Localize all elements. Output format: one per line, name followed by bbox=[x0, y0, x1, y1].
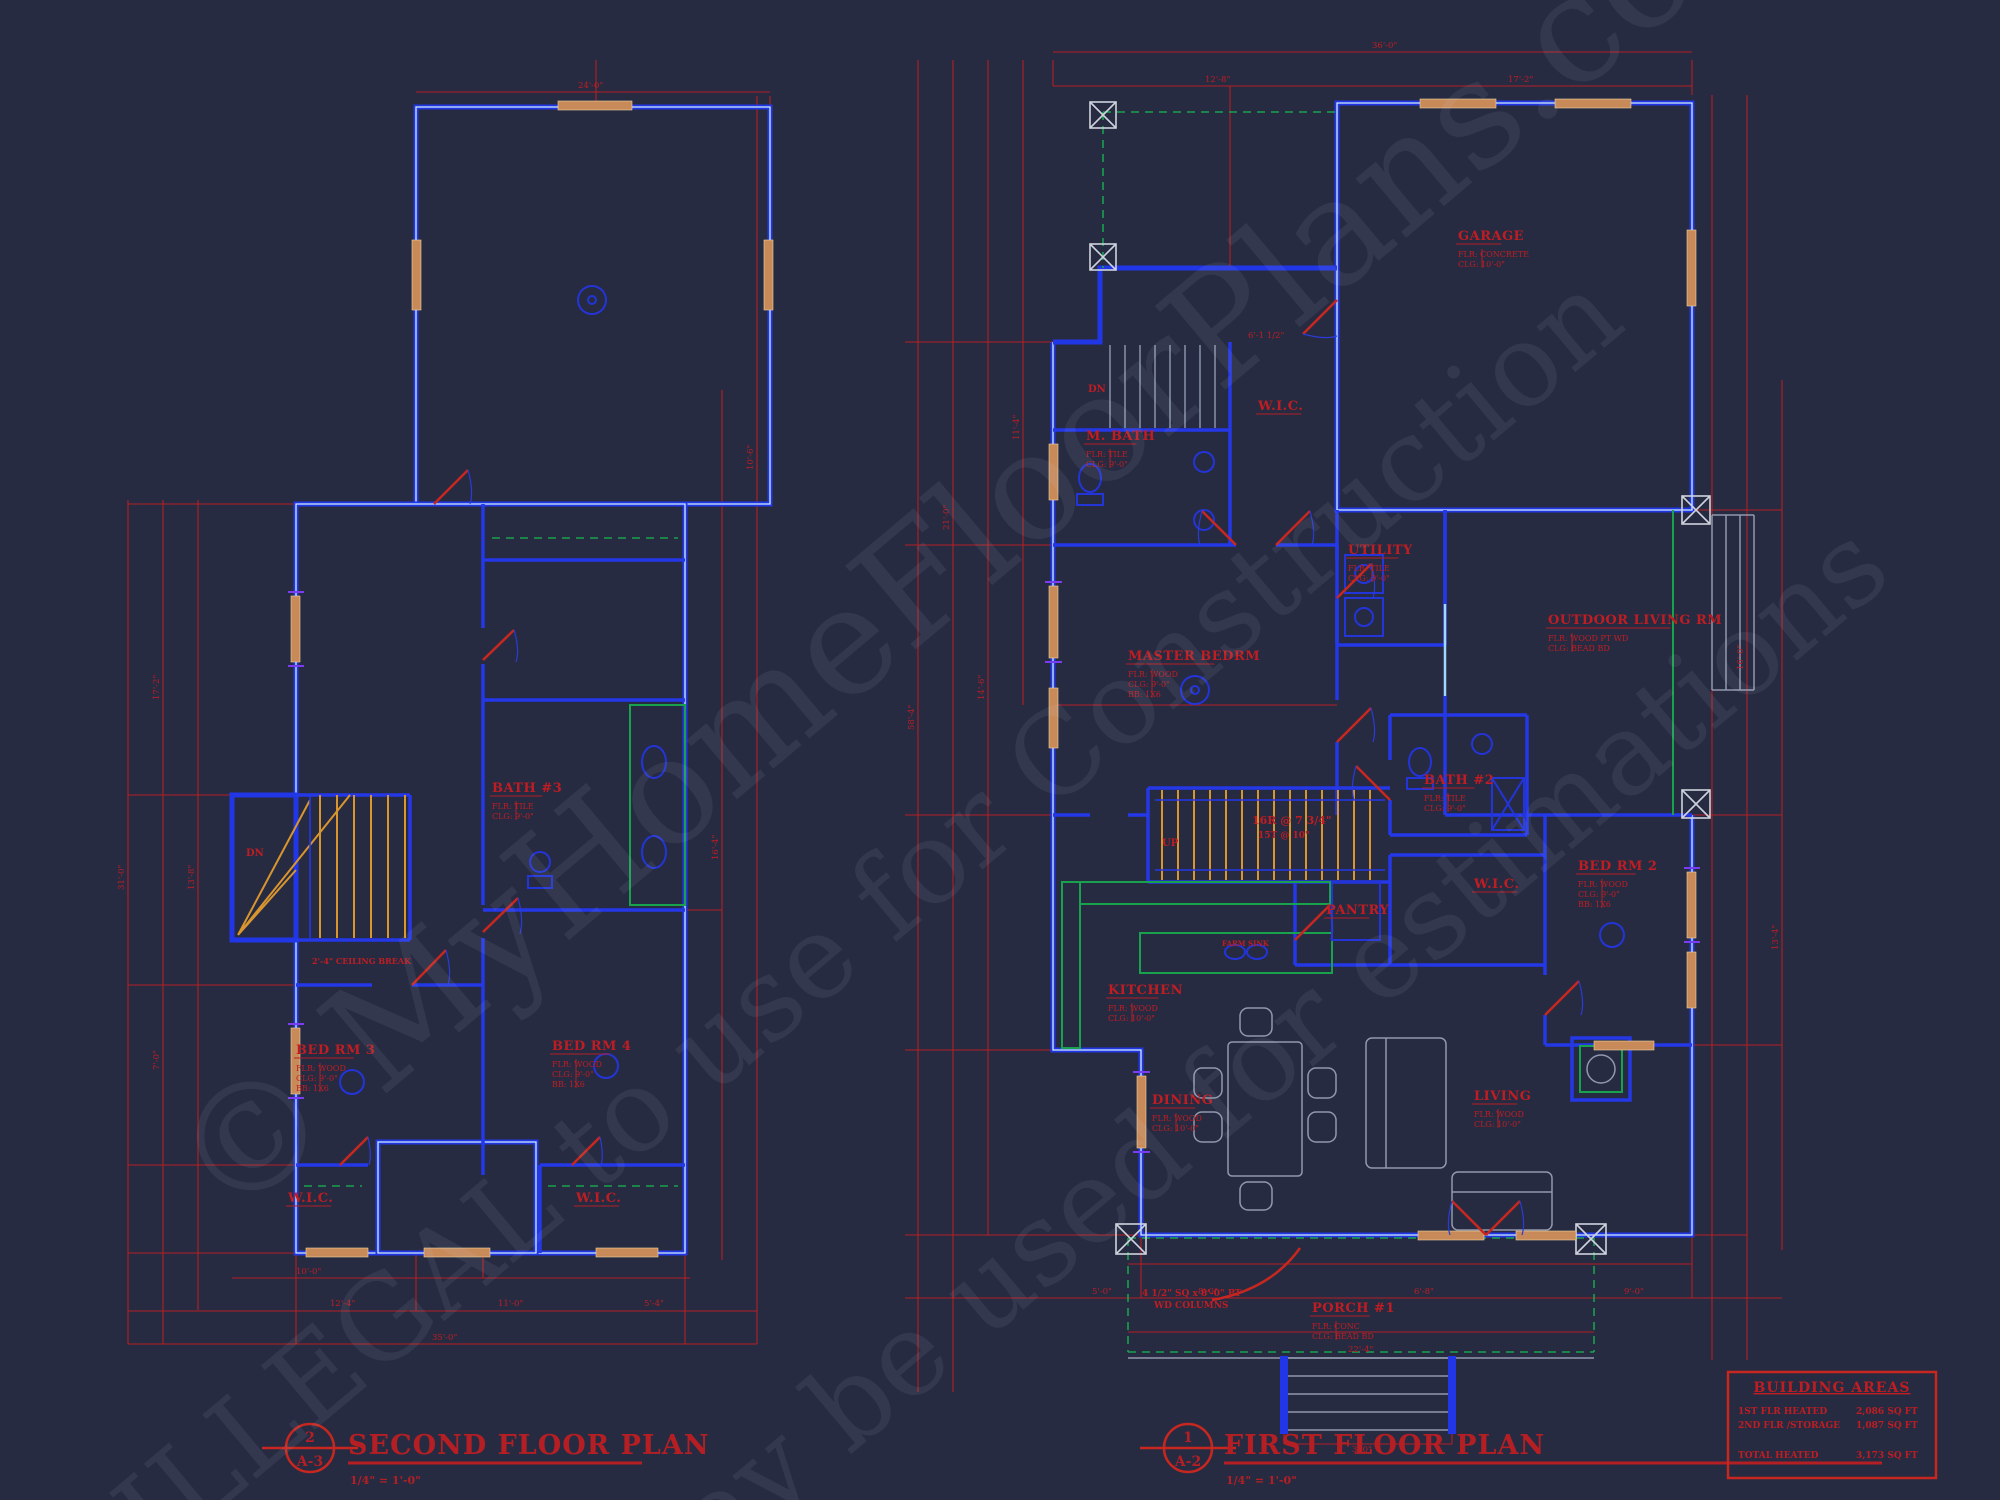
annotation-layer: BED RM 3FLR: WOODCLG: 9'-0"BB: 1X6BED RM… bbox=[117, 41, 1781, 1455]
porch bbox=[1116, 1224, 1606, 1434]
dimension-label: 3'-0" bbox=[1352, 1445, 1372, 1455]
closet-shelf-lines bbox=[304, 538, 678, 1186]
dimension-label: 17'-2" bbox=[1508, 75, 1533, 85]
room-attribute: CLG: 9'-0" bbox=[1424, 804, 1466, 813]
second-floor-stair bbox=[238, 795, 405, 938]
second-floor-plan: 2 A-3 SECOND FLOOR PLAN 1/4" = 1'-0" bbox=[128, 60, 773, 1487]
floor-plan-drawing: 2 A-3 SECOND FLOOR PLAN 1/4" = 1'-0" bbox=[0, 0, 2000, 1500]
room-attribute: FLR: WOOD bbox=[1152, 1114, 1202, 1123]
room-attribute: FLR: WOOD bbox=[1474, 1110, 1524, 1119]
plan-scale: 1/4" = 1'-0" bbox=[350, 1474, 421, 1487]
room-label: MASTER BEDRM bbox=[1128, 649, 1260, 664]
area-row-label: 1ST FLR HEATED bbox=[1738, 1407, 1827, 1417]
room-attribute: BB: 1X6 bbox=[552, 1080, 585, 1089]
bath3-vanity-counter bbox=[630, 705, 685, 905]
room-attribute: FLR: TILE bbox=[1348, 564, 1390, 573]
room-attribute: FLR: WOOD bbox=[1578, 880, 1628, 889]
room-attribute: BB: 1X6 bbox=[296, 1084, 329, 1093]
rear-patio bbox=[1090, 102, 1337, 270]
plan-title: FIRST FLOOR PLAN bbox=[1224, 1430, 1545, 1461]
room-label: BED RM 4 bbox=[552, 1039, 631, 1054]
room-label: PANTRY bbox=[1326, 903, 1389, 918]
room-label: GARAGE bbox=[1458, 229, 1524, 244]
dimension-label: 13'-4" bbox=[1771, 925, 1781, 950]
dimension-label: 58'-4" bbox=[907, 705, 917, 730]
room-attribute: CLG: 9'-0" bbox=[1086, 460, 1128, 469]
room-attribute: FLR: WOOD bbox=[1128, 670, 1178, 679]
dimension-label: 10'-0" bbox=[296, 1267, 321, 1277]
dimension-label: 14'-6" bbox=[977, 675, 987, 700]
dimension-label: 21'-0" bbox=[942, 505, 952, 530]
room-attribute: FLR: WOOD PT WD bbox=[1548, 634, 1628, 643]
room-attribute: FLR: TILE bbox=[1086, 450, 1128, 459]
room-label: PORCH #1 bbox=[1312, 1301, 1395, 1316]
note-label: 16R @ 7 3/4" bbox=[1252, 814, 1332, 827]
room-attribute: CLG: 9'-0" bbox=[492, 812, 534, 821]
room-attribute: CLG: 9'-0" bbox=[1578, 890, 1620, 899]
note-label: 4 1/2" SQ x 8'-0" PT bbox=[1142, 1289, 1242, 1299]
dimension-label: 5'-4" bbox=[644, 1299, 664, 1309]
dimension-label: 12'-8" bbox=[1205, 75, 1230, 85]
area-row-value: 2,086 SQ FT bbox=[1856, 1407, 1918, 1417]
room-attribute: CLG: BEAD BD bbox=[1548, 644, 1610, 653]
first-floor-plan: 1 A-2 FIRST FLOOR PLAN 1/4" = 1'-0" BUIL… bbox=[905, 52, 1936, 1487]
note-label: 2'-4" CEILING BREAK bbox=[312, 956, 412, 966]
dimension-label: 16'-4" bbox=[711, 835, 721, 860]
building-areas-title: BUILDING AREAS bbox=[1754, 1380, 1911, 1396]
dimension-label: 36'-0" bbox=[1372, 41, 1397, 51]
dimension-label: 11'-4" bbox=[1012, 415, 1022, 440]
dimension-label: 16'-0" bbox=[1736, 645, 1746, 670]
area-row-value: 1,087 SQ FT bbox=[1856, 1421, 1918, 1431]
area-row-label: TOTAL HEATED bbox=[1738, 1451, 1819, 1461]
dimension-label: 7'-0" bbox=[152, 1050, 162, 1070]
room-label: W.I.C. bbox=[575, 1191, 621, 1206]
room-attribute: FLR: TILE bbox=[492, 802, 534, 811]
room-label: KITCHEN bbox=[1108, 983, 1183, 998]
dimension-label: 31'-0" bbox=[117, 865, 127, 890]
dimension-label: 22'-4" bbox=[1348, 1345, 1373, 1355]
plan-scale: 1/4" = 1'-0" bbox=[1226, 1474, 1297, 1487]
room-attribute: FLR: CONCRETE bbox=[1458, 250, 1529, 259]
room-attribute: CLG: BEAD BD bbox=[1312, 1332, 1374, 1341]
dimension-label: 17'-2" bbox=[152, 675, 162, 700]
dimension-label: 35'-0" bbox=[432, 1333, 457, 1343]
note-label: 15T @ 10" bbox=[1258, 831, 1310, 841]
second-floor-title-block: 2 A-3 SECOND FLOOR PLAN 1/4" = 1'-0" bbox=[262, 1424, 710, 1487]
area-row-label: 2ND FLR /STORAGE bbox=[1738, 1421, 1840, 1431]
sheet-number: A-3 bbox=[296, 1454, 323, 1470]
dimension-label: 12'-4" bbox=[330, 1299, 355, 1309]
dimension-label: 5'-0" bbox=[1092, 1287, 1112, 1297]
room-attribute: CLG: 9'-0" bbox=[296, 1074, 338, 1083]
room-label: W.I.C. bbox=[1473, 877, 1519, 892]
room-label: M. BATH bbox=[1086, 429, 1155, 444]
dimension-label: 9'-0" bbox=[1624, 1287, 1644, 1297]
area-row-value: 3,173 SQ FT bbox=[1856, 1451, 1918, 1461]
cad-sheet: 2 A-3 SECOND FLOOR PLAN 1/4" = 1'-0" bbox=[0, 0, 2000, 1500]
note-label: FARM SINK bbox=[1222, 939, 1270, 948]
room-attribute: CLG: 10'-0" bbox=[1108, 1014, 1155, 1023]
dimension-label: 6'-1 1/2" bbox=[1248, 331, 1284, 341]
room-label: DINING bbox=[1152, 1093, 1213, 1108]
room-attribute: CLG: 10'-0" bbox=[1474, 1120, 1521, 1129]
dimension-label: 6'-8" bbox=[1414, 1287, 1434, 1297]
room-label: BATH #2 bbox=[1424, 773, 1494, 788]
room-attribute: CLG: 9'-0" bbox=[1348, 574, 1390, 583]
room-label: W.I.C. bbox=[287, 1191, 333, 1206]
room-attribute: CLG: 10'-0" bbox=[1458, 260, 1505, 269]
room-attribute: BB: 1X6 bbox=[1128, 690, 1161, 699]
room-attribute: CLG: 9'-0" bbox=[1128, 680, 1170, 689]
detail-number: 1 bbox=[1183, 1430, 1193, 1446]
note-label: UP bbox=[1162, 838, 1179, 849]
room-label: OUTDOOR LIVING RM bbox=[1548, 613, 1722, 628]
detail-number: 2 bbox=[305, 1430, 315, 1446]
room-label: W.I.C. bbox=[1257, 399, 1303, 414]
room-label: UTILITY bbox=[1348, 543, 1413, 558]
dimension-label: 24'-0" bbox=[578, 81, 603, 91]
room-attribute: BB: 1X6 bbox=[1578, 900, 1611, 909]
room-attribute: FLR: WOOD bbox=[296, 1064, 346, 1073]
room-attribute: FLR: WOOD bbox=[552, 1060, 602, 1069]
room-label: BATH #3 bbox=[492, 781, 562, 796]
room-attribute: FLR: TILE bbox=[1424, 794, 1466, 803]
bath-fixtures bbox=[1077, 452, 1624, 947]
note-label: DN bbox=[1088, 384, 1106, 395]
plan-title: SECOND FLOOR PLAN bbox=[348, 1430, 710, 1461]
second-floor-dimension-lines bbox=[128, 60, 770, 1344]
dimension-label: 11'-0" bbox=[498, 1299, 523, 1309]
second-floor-windows bbox=[288, 101, 773, 1257]
note-label: DN bbox=[246, 848, 264, 859]
dimension-label: 13'-8" bbox=[187, 865, 197, 890]
room-label: BED RM 3 bbox=[296, 1043, 375, 1058]
room-label: BED RM 2 bbox=[1578, 859, 1657, 874]
note-label: WD COLUMNS bbox=[1153, 1301, 1228, 1311]
room-attribute: CLG: 10'-0" bbox=[1152, 1124, 1199, 1133]
sheet-number: A-2 bbox=[1174, 1454, 1201, 1470]
first-floor-stairs bbox=[1110, 345, 1385, 880]
second-floor-fixtures bbox=[340, 286, 666, 1094]
dimension-label: 10'-6" bbox=[746, 445, 756, 470]
room-label: LIVING bbox=[1474, 1089, 1531, 1104]
room-attribute: FLR: WOOD bbox=[1108, 1004, 1158, 1013]
room-attribute: CLG: 9'-0" bbox=[552, 1070, 594, 1079]
